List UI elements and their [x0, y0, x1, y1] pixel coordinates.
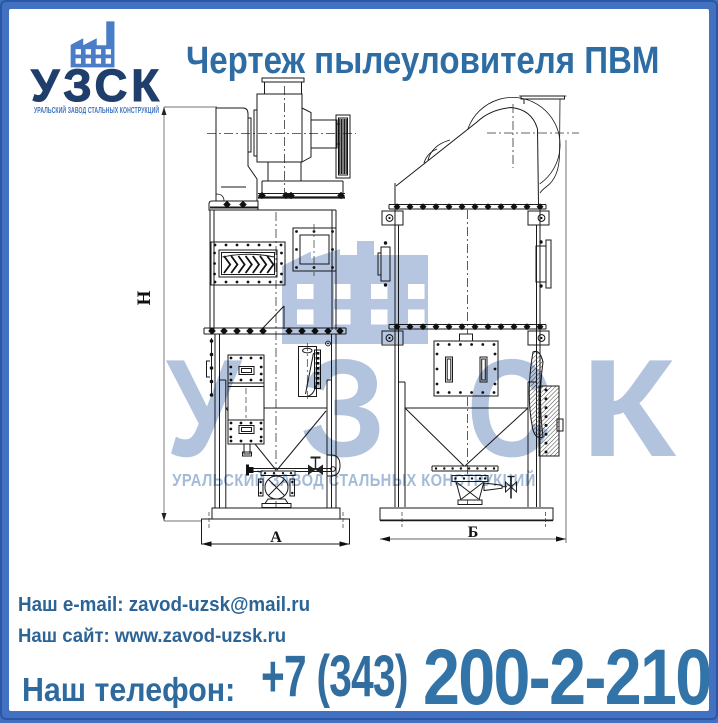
svg-text:С: С	[467, 331, 551, 486]
svg-text:К: К	[581, 331, 677, 486]
svg-text:У: У	[166, 330, 243, 486]
svg-text:Н: Н	[134, 290, 155, 305]
svg-text:З: З	[300, 331, 385, 487]
svg-text:УРАЛЬСКИЙ ЗАВОД СТАЛЬНЫХ КОНСТ: УРАЛЬСКИЙ ЗАВОД СТАЛЬНЫХ КОНСТРУКЦИЙ	[172, 470, 535, 491]
svg-text:А: А	[270, 529, 282, 546]
svg-text:Б: Б	[468, 524, 479, 541]
